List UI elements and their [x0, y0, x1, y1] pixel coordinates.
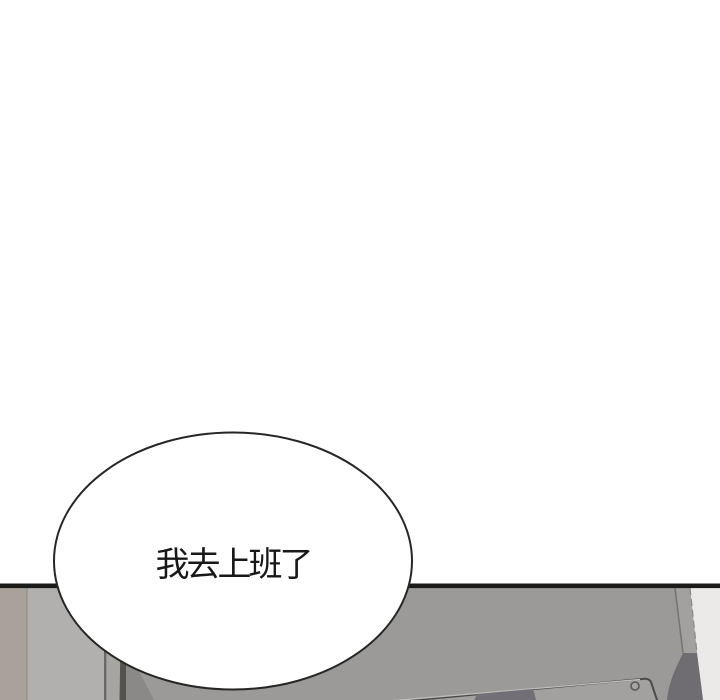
- speech-bubble-text: 我去上班了: [83, 527, 383, 595]
- speech-bubble-layer: [0, 0, 720, 700]
- webtoon-panel: 我去上班了: [0, 0, 720, 700]
